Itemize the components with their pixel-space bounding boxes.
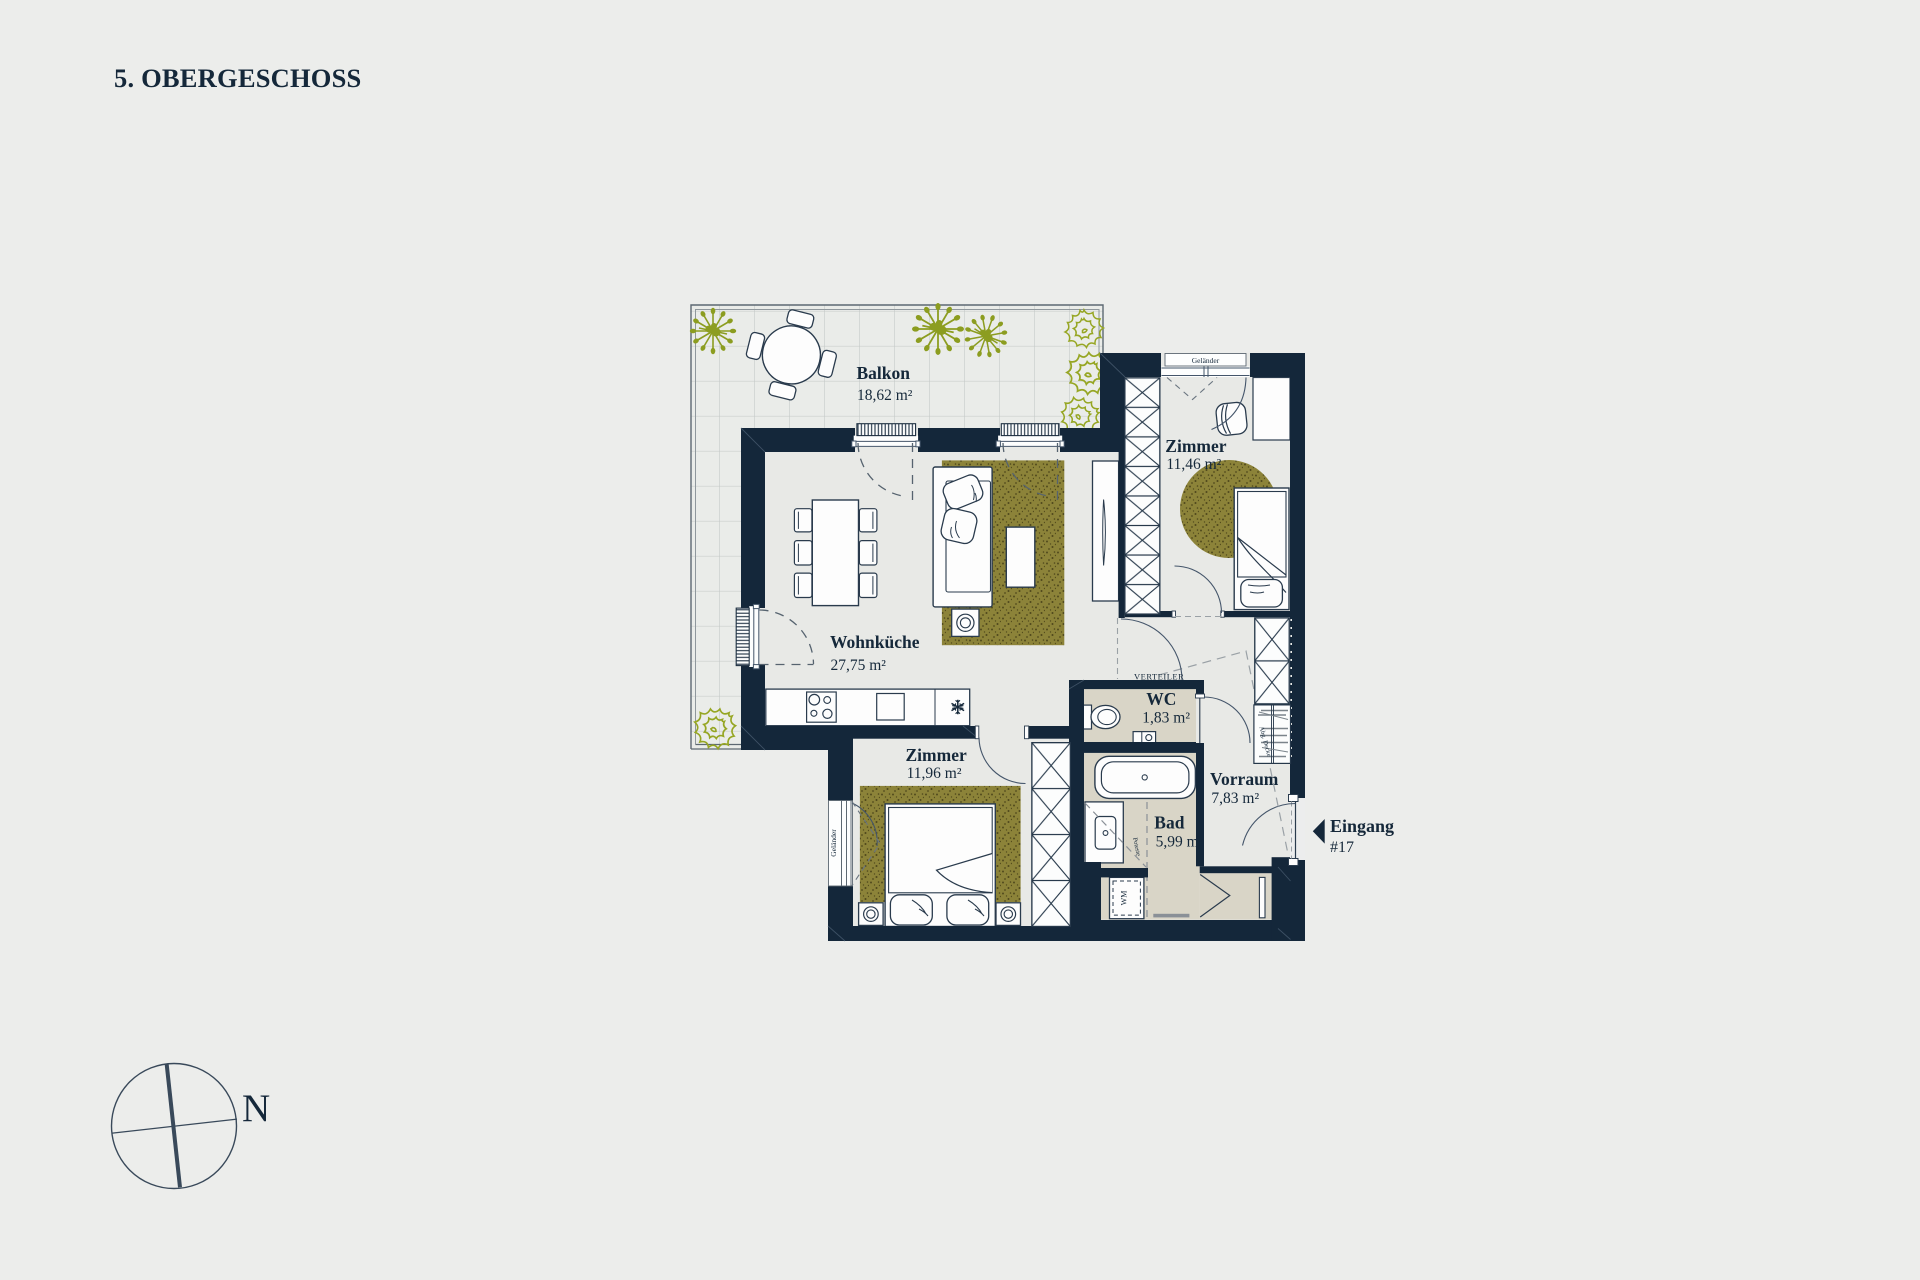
svg-text:Zimmer: Zimmer bbox=[906, 745, 967, 765]
svg-text:27,75 m²: 27,75 m² bbox=[831, 657, 887, 674]
svg-text:N: N bbox=[242, 1087, 270, 1130]
svg-text:5,99 m²: 5,99 m² bbox=[1156, 834, 1204, 851]
svg-text:11,96 m²: 11,96 m² bbox=[907, 765, 962, 782]
svg-text:7,83 m²: 7,83 m² bbox=[1211, 790, 1259, 807]
svg-text:Balkon: Balkon bbox=[857, 363, 911, 383]
svg-text:Vorraum: Vorraum bbox=[1210, 769, 1279, 789]
svg-text:Geländer: Geländer bbox=[829, 829, 838, 857]
svg-text:Geländer: Geländer bbox=[1192, 356, 1220, 365]
svg-text:5. OBERGESCHOSS: 5. OBERGESCHOSS bbox=[114, 63, 361, 93]
svg-text:11,46 m²: 11,46 m² bbox=[1166, 456, 1221, 473]
svg-text:1,83 m²: 1,83 m² bbox=[1142, 710, 1190, 727]
svg-text:#17: #17 bbox=[1330, 839, 1354, 856]
svg-text:Eingang: Eingang bbox=[1330, 816, 1394, 836]
svg-text:WC: WC bbox=[1146, 689, 1176, 709]
svg-text:VERTEILER: VERTEILER bbox=[1134, 672, 1184, 682]
svg-text:18,62 m²: 18,62 m² bbox=[857, 387, 913, 404]
svg-text:Bad: Bad bbox=[1154, 813, 1184, 833]
svg-text:Wohnküche: Wohnküche bbox=[830, 632, 920, 652]
svg-text:WM: WM bbox=[1120, 891, 1129, 906]
svg-text:Zimmer: Zimmer bbox=[1165, 436, 1226, 456]
